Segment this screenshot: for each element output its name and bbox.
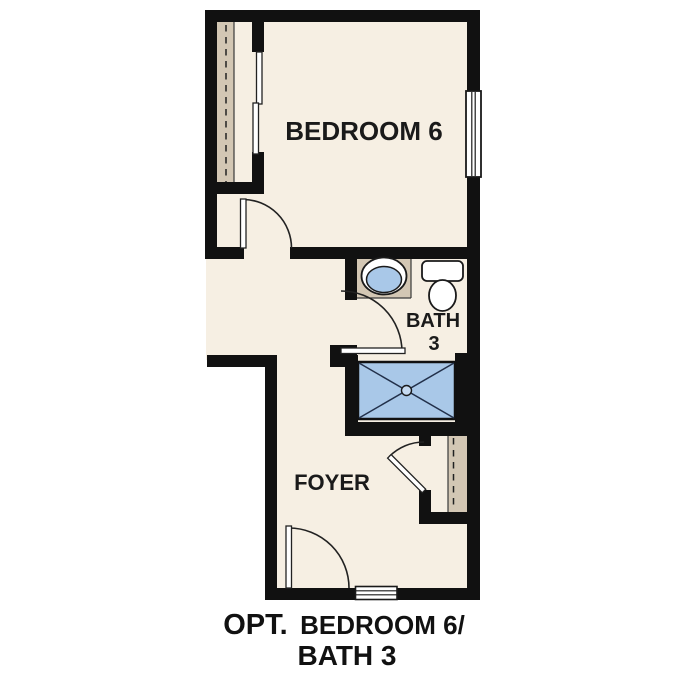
wall-shower-left — [345, 355, 358, 425]
caption-line2: BATH 3 — [297, 640, 396, 671]
wall-bedroom-closet-stub-top — [252, 22, 264, 52]
wall-left-bedroom — [205, 10, 217, 259]
wall-foyer-left — [265, 355, 277, 600]
floorplan-drawing: BEDROOM 6 BATH 3 FOYER OPT. BEDROOM 6/ B… — [0, 0, 687, 687]
threshold-icon — [356, 587, 398, 600]
wall-bath-sink-stub — [345, 259, 357, 300]
bath-label-line2: 3 — [428, 333, 439, 355]
wall-foyer-closet-bottom — [419, 512, 480, 524]
caption-line1-suffix: BEDROOM 6/ — [300, 610, 465, 640]
wall-top — [205, 10, 480, 22]
wall-foyer-closet-stub-top — [419, 436, 431, 446]
caption-line1-prefix: OPT. — [223, 609, 287, 641]
sink-icon — [362, 258, 407, 295]
wall-bedroom-closet-bottom — [205, 182, 264, 194]
window-icon — [466, 91, 481, 177]
caption-line1: OPT. BEDROOM 6/ — [223, 609, 465, 641]
shower-icon — [358, 362, 455, 419]
plan-caption: OPT. BEDROOM 6/ BATH 3 — [223, 609, 465, 671]
wall-bedroom-bottom-left — [205, 247, 244, 259]
wall-foyer-closet-stub-bottom — [419, 490, 431, 512]
wall-shower-right-chunk — [455, 353, 480, 427]
foyer-label: FOYER — [294, 470, 370, 495]
bath-label-line1: BATH — [406, 310, 460, 332]
bedroom-label: BEDROOM 6 — [285, 116, 442, 146]
foyer-closet-shelf — [448, 436, 467, 512]
floorplan-page: BEDROOM 6 BATH 3 FOYER OPT. BEDROOM 6/ B… — [0, 0, 687, 687]
